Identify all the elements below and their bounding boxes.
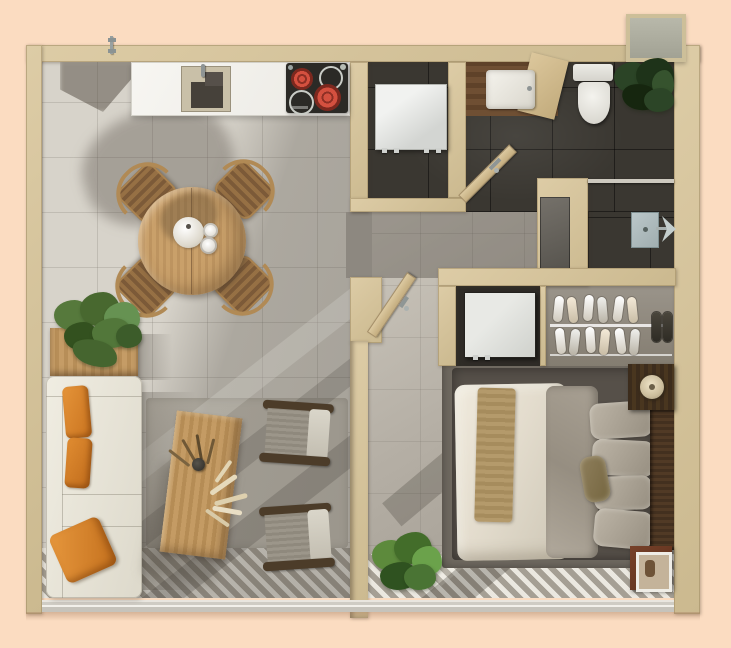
shower-glass-line [588,179,674,183]
washer-foot [382,148,387,153]
cooktop-knob-left [288,65,293,70]
wall-right [674,45,700,614]
lamp-finial [649,384,655,390]
shower-drain [643,227,648,232]
bed-pillow-4 [592,508,653,551]
passage-floor [346,212,372,278]
cup-large [200,237,217,254]
armchair-seat [264,408,309,457]
teapot-lid-knob [186,224,191,229]
pampas-vase [192,458,205,471]
picture-frame-figure [645,560,655,577]
appliance-foot [485,355,490,360]
slipper [652,312,661,342]
sofa-seat-divider-1 [62,494,142,495]
wall-laundry-divider [448,62,466,198]
sofa-cushion-2 [64,437,92,489]
burner-off-back-left [289,90,314,115]
ac-unit [626,14,686,62]
interior-door-handle-knob [404,306,409,311]
armchair-seat [264,512,310,563]
vanity-faucet [527,86,532,91]
shower-panel [540,197,570,275]
bed-headboard [650,404,674,550]
slipper [663,312,672,342]
appliance-foot [473,355,478,360]
toilet-tank [573,64,613,81]
wardrobe-shelf-edge [550,354,672,356]
entry-door-hinge-2 [108,49,116,53]
entry-door-hinge-1 [108,38,116,42]
niche-appliance [464,292,536,358]
sofa-cushion-1 [62,385,92,439]
burner-on-front-left [291,68,313,90]
washer-foot [436,148,441,153]
wall-bedroom-divider [350,341,368,618]
wall-bathroom-south [350,198,466,212]
plan-drop-shadow [26,612,700,621]
washer-foot [394,148,399,153]
sneaker [585,327,596,354]
kitchen-faucet [201,64,205,77]
wall-closet-north [438,268,676,286]
wall-top [26,45,700,62]
burner-on-back-right [314,84,341,111]
cooktop-label [292,106,308,109]
wall-kitchen-divider [350,62,368,212]
plant-leaf [644,88,674,112]
bed-throw [474,388,515,523]
plant-leaf [116,324,142,348]
plant-leaf [404,564,436,590]
washer-foot [424,148,429,153]
bathroom-door-handle-knob [494,168,499,173]
cup-small [203,223,218,238]
toilet-bowl [578,82,610,124]
washing-machine [375,84,447,150]
armchair-back-cushion [307,509,332,562]
armchair-2 [259,503,335,572]
armchair-back-cushion [306,409,330,460]
kitchen-sink-step [205,72,223,86]
wall-niche-west [438,286,456,366]
cooktop-knob-right [340,64,346,70]
floor-plan-stage [0,0,731,648]
wall-left [26,45,42,614]
sofa-armrest-line [46,396,142,397]
armchair-1 [259,400,334,467]
wall-niche-east [540,286,546,366]
console-shadow [136,334,172,380]
window-wall [42,600,674,612]
